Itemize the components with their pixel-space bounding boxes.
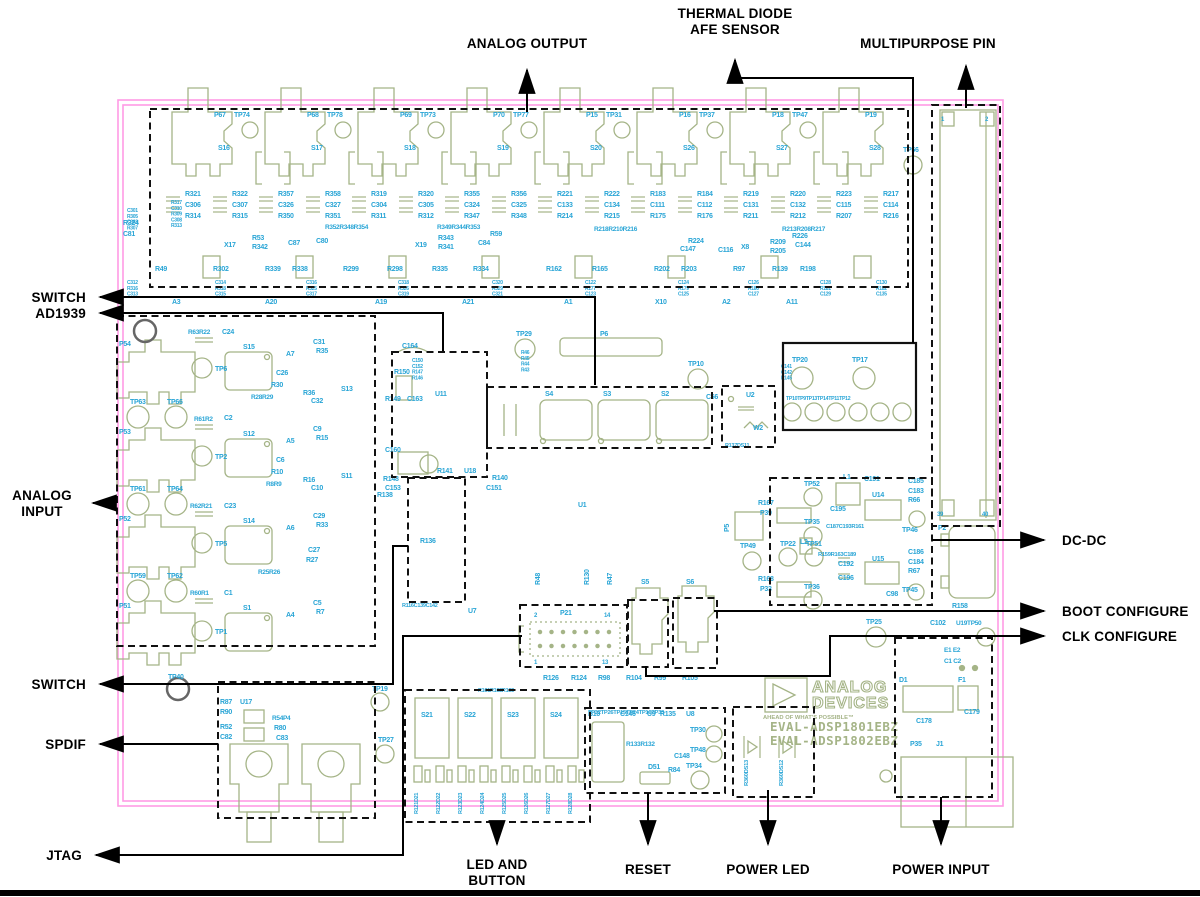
designator-label: R36 xyxy=(303,390,315,397)
designator-label: TP66 xyxy=(167,399,183,406)
designator-label: TP62 xyxy=(167,573,183,580)
silkscreen-shape xyxy=(568,766,576,782)
designator-label: R202 xyxy=(654,266,670,273)
designator-label: R321 xyxy=(185,191,201,198)
silkscreen-shape xyxy=(546,766,554,782)
silkscreen-shape xyxy=(480,766,488,782)
designator-label: C1 C2 xyxy=(944,658,962,665)
designator-stack: C126R180C127 xyxy=(748,280,759,298)
designator-label: S17 xyxy=(311,145,323,152)
designator-label: R16 xyxy=(303,477,315,484)
designator-label: S2 xyxy=(661,391,669,398)
testpoint-pad xyxy=(165,406,187,428)
designator-label: R209 xyxy=(770,239,786,246)
silkscreen-shape xyxy=(592,722,624,782)
designator-label: R322 xyxy=(232,191,248,198)
designator-label: R348 xyxy=(511,213,527,220)
silkscreen-shape xyxy=(823,88,883,176)
designator-label: C131 xyxy=(743,202,759,209)
silkscreen-shape xyxy=(535,770,540,782)
designator-label: R35 xyxy=(316,348,328,355)
designator-label: C146 xyxy=(620,711,636,718)
designator-label: TP35 xyxy=(804,519,820,526)
ad1939-arrow xyxy=(100,313,443,351)
switch-mid-label: SWITCH xyxy=(32,677,86,692)
designator-label: R122D22 xyxy=(436,793,442,814)
designator-label: S20 xyxy=(590,145,602,152)
designator-label: C148 xyxy=(674,753,690,760)
designator-label: R140 xyxy=(492,475,508,482)
designator-label: R15 xyxy=(316,435,328,442)
designator-label: C26 xyxy=(276,370,288,377)
silkscreen-shape xyxy=(540,400,592,440)
designator-label: P70 xyxy=(493,112,505,119)
designator-label: S21 xyxy=(421,712,433,719)
designator-label: U7 xyxy=(468,608,477,615)
designator-label: R123D23 xyxy=(458,793,464,814)
designator-label: 2 xyxy=(985,117,989,123)
designator-label: C87 xyxy=(288,240,300,247)
designator-stack: C150C152R147R146 xyxy=(412,358,423,381)
designator-label: C81 xyxy=(123,231,135,238)
designator-label: S19 xyxy=(497,145,509,152)
designator-label: C196 xyxy=(838,575,854,582)
silkscreen-shape xyxy=(557,770,562,782)
designator-label: R126D26 xyxy=(524,793,530,814)
designator-label: R312 xyxy=(418,213,434,220)
testpoint-pad xyxy=(428,122,444,138)
designator-label: R139 xyxy=(772,266,788,273)
silkscreen-shape xyxy=(458,766,466,782)
designator-label: TP10 xyxy=(688,361,704,368)
designator-label: R116C139C142 xyxy=(402,603,438,609)
board-diagram-page: P67TP74S16P68TP78S17P69TP73S18P70TP77S19… xyxy=(0,0,1200,897)
designator-label: P21 xyxy=(560,610,572,617)
designator-label: R10 xyxy=(271,469,283,476)
designator-label: R220 xyxy=(790,191,806,198)
testpoint-pad xyxy=(318,751,344,777)
designator-label: TP29 xyxy=(516,331,532,338)
designator-label: C32 xyxy=(311,398,323,405)
designator-label: 14 xyxy=(604,613,611,619)
designator-label: E1 E2 xyxy=(944,647,961,654)
designator-label: A1 xyxy=(564,299,573,306)
silkscreen-shape xyxy=(265,88,325,176)
designator-label: P15 xyxy=(586,112,598,119)
designator-label: S4 xyxy=(545,391,553,398)
designator-label: R360DS13 xyxy=(744,759,750,786)
silkscreen-shape xyxy=(524,766,532,782)
designator-label: A4 xyxy=(286,612,295,619)
mounting-hole xyxy=(134,320,156,342)
designator-stack: C130R182C135 xyxy=(876,280,887,298)
analog-devices-logo: ANALOG DEVICES AHEAD OF WHAT'S POSSIBLE™… xyxy=(763,678,898,748)
silkscreen-shape xyxy=(579,770,584,782)
designator-label: U15 xyxy=(872,556,884,563)
testpoint-pad xyxy=(960,666,965,671)
designator-label: R136 xyxy=(420,538,436,545)
designator-label: S27 xyxy=(776,145,788,152)
designator-label: R28R29 xyxy=(251,394,274,401)
designator-label: C27 xyxy=(308,547,320,554)
designator-label: R141 xyxy=(437,468,453,475)
silkscreen-shape xyxy=(901,757,1013,827)
silkscreen-shape xyxy=(637,88,697,176)
testpoint-pad xyxy=(729,397,734,402)
designator-label: S15 xyxy=(243,344,255,351)
designator-label: TP37 xyxy=(699,112,715,119)
jtag-label: JTAG xyxy=(46,848,82,863)
designator-stack: C312R316C313 xyxy=(127,280,138,298)
designator-label: R162 xyxy=(546,266,562,273)
designator-label: R226 xyxy=(792,233,808,240)
designator-label: P69 xyxy=(400,112,412,119)
designator-label: R184 xyxy=(697,191,713,198)
designator-label: R335 xyxy=(432,266,448,273)
designator-label: S6 xyxy=(686,579,694,586)
designator-label: U18 xyxy=(464,468,476,475)
designator-label: R311 xyxy=(371,213,387,220)
designator-label: C307 xyxy=(232,202,248,209)
designator-label: C132 xyxy=(790,202,806,209)
designator-label: R224 xyxy=(688,238,704,245)
led-button-label-1: LED AND xyxy=(467,857,528,872)
testpoint-pad xyxy=(706,746,722,762)
designator-label: X17 xyxy=(224,242,236,249)
analog-input-region xyxy=(117,316,375,646)
designator-label: C151 xyxy=(486,485,502,492)
designator-label: C2 xyxy=(224,415,233,422)
silkscreen-shape xyxy=(865,500,901,520)
designator-label: R62R21 xyxy=(190,503,213,510)
testpoint-pad xyxy=(573,630,576,633)
designator-label: S14 xyxy=(243,518,255,525)
testpoint-pad xyxy=(265,529,270,534)
designator-label: A21 xyxy=(462,299,474,306)
designator-label: R223 xyxy=(836,191,852,198)
designator-label: C184 xyxy=(908,559,924,566)
designator-label: TP30 xyxy=(690,727,706,734)
silkscreen-shape xyxy=(414,766,422,782)
designator-label: R214 xyxy=(557,213,573,220)
designator-label: R158 xyxy=(952,603,968,610)
silkscreen-shape xyxy=(903,686,953,712)
designator-label: TP61 xyxy=(130,486,146,493)
designator-label: R63R22 xyxy=(188,329,211,336)
designator-label: R84 xyxy=(668,767,680,774)
silkscreen-shape xyxy=(949,526,995,598)
testpoint-pad xyxy=(561,644,564,647)
designator-label: R49 xyxy=(155,266,167,273)
silkscreen-shape xyxy=(501,698,535,758)
designator-label: R183 xyxy=(650,191,666,198)
testpoint-pad xyxy=(371,693,389,711)
designator-stack: C314R318C315 xyxy=(215,280,226,298)
testpoint-pad xyxy=(805,403,823,421)
designator-stack: R317C310R309C308R313 xyxy=(171,200,182,229)
designator-label: R125D25 xyxy=(502,793,508,814)
silkscreen-shape xyxy=(865,562,899,584)
designator-label: X19 xyxy=(415,242,427,249)
designator-label: C5 xyxy=(313,600,322,607)
designator-label: R33 xyxy=(316,522,328,529)
designator-label: C6 xyxy=(276,457,285,464)
designator-label: D1 xyxy=(899,677,908,684)
designator-label: R53 xyxy=(252,235,264,242)
designator-label: S18 xyxy=(404,145,416,152)
designator-label: P6 xyxy=(600,331,608,338)
designator-label: C147 xyxy=(680,246,696,253)
designator-label: TP5 xyxy=(215,541,227,548)
designator-label: R347 xyxy=(464,213,480,220)
silkscreen-shape xyxy=(458,698,492,758)
designator-label: C82 xyxy=(220,734,232,741)
silkscreen-shape xyxy=(735,512,763,540)
testpoint-pad xyxy=(743,552,761,570)
testpoint-pad xyxy=(335,122,351,138)
designator-label: P51 xyxy=(119,603,131,610)
switch-top-label: SWITCH xyxy=(32,290,86,305)
designator-label: P52 xyxy=(119,516,131,523)
silkscreen-shape xyxy=(544,88,604,176)
designator-label: TP78 xyxy=(327,112,343,119)
designator-label: R175 xyxy=(650,213,666,220)
silkscreen-shape xyxy=(730,88,790,176)
testpoint-pad xyxy=(584,630,587,633)
designator-label: R360DS12 xyxy=(779,760,785,786)
silkscreen-shape xyxy=(678,586,714,652)
designator-label: TP36 xyxy=(804,584,820,591)
dip-socket xyxy=(530,622,620,656)
designator-label: R218R210R216 xyxy=(594,226,638,233)
silkscreen-shape xyxy=(117,515,195,579)
designator-label: R67 xyxy=(908,568,920,575)
designator-label: C115 xyxy=(836,202,852,209)
designator-label: S24 xyxy=(550,712,562,719)
analog-input-label-2: INPUT xyxy=(21,504,63,519)
designator-label: R138 xyxy=(377,492,393,499)
designator-label: P53 xyxy=(119,429,131,436)
testpoint-pad xyxy=(973,666,978,671)
designator-label: A19 xyxy=(375,299,387,306)
designator-label: R343 xyxy=(438,235,454,242)
designator-label: R216 xyxy=(883,213,899,220)
led-button-label-2: BUTTON xyxy=(468,873,525,888)
testpoint-pad xyxy=(127,493,149,515)
silkscreen-shape xyxy=(349,152,355,184)
designator-label: R357 xyxy=(278,191,294,198)
designator-label: C186 xyxy=(908,549,924,556)
designator-label: TP27 xyxy=(378,737,394,744)
designator-label: C83 xyxy=(276,735,288,742)
designator-label: J1 xyxy=(936,741,944,748)
designator-label: R349R344R353 xyxy=(437,224,481,231)
mounting-hole xyxy=(167,678,189,700)
analog-output-label: ANALOG OUTPUT xyxy=(467,36,588,51)
silkscreen-shape xyxy=(942,500,954,516)
testpoint-pad xyxy=(614,122,630,138)
testpoint-pad xyxy=(573,644,576,647)
designator-label: U19TP50 xyxy=(956,620,982,627)
testpoint-pad xyxy=(791,367,813,389)
designator-label: C111 xyxy=(650,202,665,209)
designator-label: R124D24 xyxy=(480,792,486,814)
designator-label: R221 xyxy=(557,191,573,198)
designator-label: R215 xyxy=(604,213,620,220)
designator-label: S13 xyxy=(341,386,353,393)
designator-label: C185 xyxy=(908,478,924,485)
designator-label: C304 xyxy=(371,202,387,209)
silkscreen-shape xyxy=(425,770,430,782)
designator-label: U14 xyxy=(872,492,884,499)
testpoint-pad xyxy=(596,630,599,633)
designator-label: C98 xyxy=(886,591,898,598)
designator-label: P68 xyxy=(307,112,319,119)
testpoint-pad xyxy=(242,122,258,138)
thermal-diode-label-2: AFE SENSOR xyxy=(690,22,780,37)
designator-label: R358 xyxy=(325,191,341,198)
silkscreen-shape xyxy=(172,88,232,176)
silkscreen-shape xyxy=(491,770,496,782)
testpoint-pad xyxy=(779,548,797,566)
designator-label: TP48 xyxy=(690,747,706,754)
designator-stack: C318R326C319 xyxy=(398,280,409,298)
designator-label: C134 xyxy=(604,202,620,209)
silkscreen-shape xyxy=(598,400,650,440)
designator-label: R80 xyxy=(274,725,286,732)
logo-line2: DEVICES xyxy=(812,695,889,712)
designator-label: R319 xyxy=(371,191,387,198)
silkscreen-shape xyxy=(447,770,452,782)
designator-label: P35 xyxy=(910,741,922,748)
designator-label: R121D21 xyxy=(414,793,420,814)
designator-label: A11 xyxy=(786,299,798,306)
designator-label: TP47 xyxy=(792,112,808,119)
designator-label: TP74 xyxy=(234,112,250,119)
designator-label: C80 xyxy=(316,238,328,245)
testpoint-pad xyxy=(265,442,270,447)
designator-label: C116 xyxy=(718,247,734,254)
designator-stack: C316R325C317 xyxy=(306,280,317,298)
designator-label: TP52 xyxy=(804,481,820,488)
designator-label: A7 xyxy=(286,351,295,358)
designator-label: C153 xyxy=(385,485,401,492)
designator-label: P16 xyxy=(679,112,691,119)
silkscreen-shape xyxy=(442,152,448,184)
ad1939-label: AD1939 xyxy=(35,306,86,321)
designator-label: R126 xyxy=(543,675,559,682)
silkscreen-shape xyxy=(502,766,510,782)
designator-label: S11 xyxy=(341,473,353,480)
designator-label: R135 xyxy=(660,711,676,718)
designator-label: C163 xyxy=(407,396,423,403)
designator-label: R130 xyxy=(584,569,591,585)
designator-label: R342 xyxy=(252,244,268,251)
designator-label: R351 xyxy=(325,213,341,220)
silkscreen-shape xyxy=(941,576,949,588)
designator-label: TP31 xyxy=(606,112,622,119)
designator-label: C164 xyxy=(402,343,418,350)
designator-label: R299 xyxy=(343,266,359,273)
designator-label: R355 xyxy=(464,191,480,198)
designator-label: R124 xyxy=(571,675,587,682)
designator-label: C114 xyxy=(883,202,899,209)
testpoint-pad xyxy=(538,644,541,647)
designator-label: P19 xyxy=(865,112,877,119)
thermal-diode-label-1: THERMAL DIODE xyxy=(678,6,793,21)
testpoint-pad xyxy=(561,630,564,633)
designator-label: R148 xyxy=(383,476,399,483)
designator-label: R207 xyxy=(836,213,852,220)
designator-label: C183 xyxy=(908,488,924,495)
designator-label: U17 xyxy=(240,699,252,706)
testpoint-pad xyxy=(521,122,537,138)
testpoint-pad xyxy=(871,403,889,421)
designator-stack: C320R329C321 xyxy=(492,280,503,298)
testpoint-pad xyxy=(607,644,610,647)
designator-label: TP46 xyxy=(902,527,918,534)
silkscreen-shape xyxy=(117,340,195,404)
designator-label: C1 xyxy=(224,590,233,597)
testpoint-pad xyxy=(849,403,867,421)
designator-label: R52 xyxy=(220,724,232,731)
silkscreen-shape xyxy=(656,400,708,440)
testpoint-pad xyxy=(880,770,892,782)
logo-triangle-icon xyxy=(773,684,795,706)
silkscreen-shape xyxy=(575,256,592,278)
designator-label: D51 xyxy=(648,764,660,771)
silkscreen-shape xyxy=(836,483,860,505)
designator-label: R205 xyxy=(770,248,786,255)
analog-input-label-1: ANALOG xyxy=(12,488,72,503)
designator-label: W2 xyxy=(753,425,763,432)
testpoint-pad xyxy=(550,644,553,647)
testpoint-pad xyxy=(607,630,610,633)
designator-label: A6 xyxy=(286,525,295,532)
designator-label: R128D28 xyxy=(568,793,574,814)
designator-label: S3 xyxy=(603,391,611,398)
designator-label: C327 xyxy=(325,202,341,209)
testpoint-pad xyxy=(265,355,270,360)
analog-output-region xyxy=(150,109,908,287)
designator-label: P18 xyxy=(772,112,784,119)
designator-label: R60R1 xyxy=(190,590,209,597)
clk-configure-label: CLK CONFIGURE xyxy=(1062,629,1177,644)
silkscreen-shape xyxy=(721,152,727,184)
testpoint-pad xyxy=(893,403,911,421)
designator-label: TP56 xyxy=(903,147,919,154)
designator-label: R27 xyxy=(306,557,318,564)
designator-label: S23 xyxy=(507,712,519,719)
board-name-2: EVAL-ADSP1802EBZ xyxy=(770,733,898,748)
designator-label: A5 xyxy=(286,438,295,445)
designator-label: C326 xyxy=(278,202,294,209)
designator-label: C195 xyxy=(830,506,846,513)
testpoint-pad xyxy=(265,616,270,621)
designator-label: 39 xyxy=(937,512,944,518)
designator-label: 1 xyxy=(941,117,945,123)
designator-label: C24 xyxy=(222,329,234,336)
designator-label: C144 xyxy=(795,242,811,249)
testpoint-pad xyxy=(420,455,438,473)
designator-label: S22 xyxy=(464,712,476,719)
designator-label: R98 xyxy=(598,675,610,682)
designator-label: R352R348R354 xyxy=(325,224,369,231)
designator-label: R217 xyxy=(883,191,899,198)
designator-label: TP25 xyxy=(866,619,882,626)
silkscreen-shape xyxy=(535,152,541,184)
designator-label: R48 xyxy=(535,573,542,585)
